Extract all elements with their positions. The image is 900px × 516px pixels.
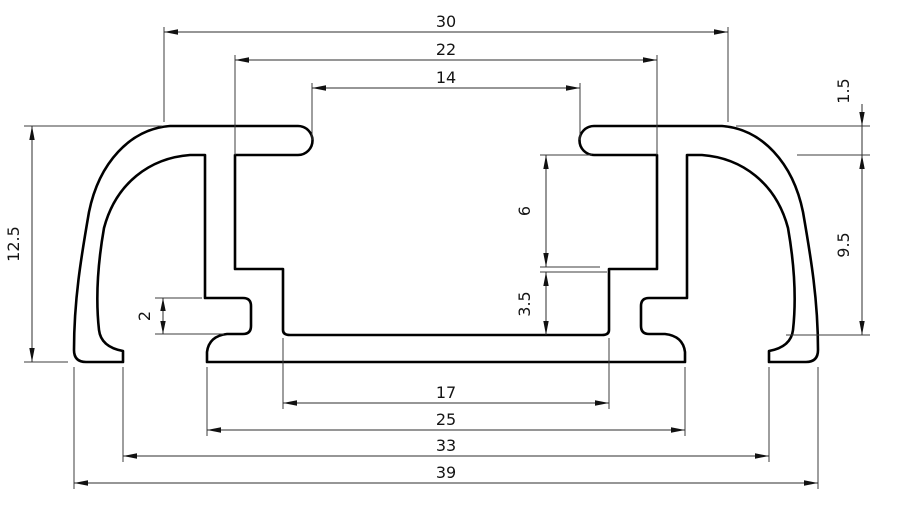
dim-top-flange-width: 30 — [164, 12, 728, 122]
arrow-down-icon — [160, 321, 165, 334]
dim-label: 12.5 — [4, 226, 23, 262]
arrow-left-icon — [283, 400, 297, 405]
arrow-left-icon — [235, 57, 249, 62]
arrow-right-icon — [595, 400, 609, 405]
dim-label: 1.5 — [834, 78, 853, 103]
arrow-right-icon — [804, 480, 818, 485]
dim-label: 25 — [436, 410, 456, 429]
arrow-up-icon — [543, 155, 548, 169]
arrow-down-icon — [859, 112, 864, 126]
arrow-left-icon — [312, 85, 326, 90]
arrow-left-icon — [207, 427, 221, 432]
arrow-right-icon — [714, 29, 728, 34]
profile-outline — [74, 126, 818, 362]
dim-side-groove-height: 2 — [135, 298, 224, 334]
arrow-left-icon — [164, 29, 178, 34]
dim-label: 14 — [436, 68, 456, 87]
dim-label: 6 — [515, 206, 534, 216]
dim-label: 39 — [436, 463, 456, 482]
arrow-up-icon — [160, 298, 165, 311]
dim-label: 30 — [436, 12, 456, 31]
arrow-down-icon — [29, 348, 34, 362]
arrow-up-icon — [859, 155, 864, 169]
drawing-canvas: 30 22 14 1.5 9.5 12.5 — [0, 0, 900, 516]
arrow-down-icon — [859, 321, 864, 335]
arrow-right-icon — [671, 427, 685, 432]
dim-label: 2 — [135, 311, 154, 321]
dim-channel-upper-depth: 6 — [515, 155, 600, 267]
technical-drawing: 30 22 14 1.5 9.5 12.5 — [0, 0, 900, 516]
dim-label: 3.5 — [515, 291, 534, 316]
arrow-left-icon — [74, 480, 88, 485]
arrow-up-icon — [543, 272, 548, 286]
arrow-right-icon — [643, 57, 657, 62]
arrow-up-icon — [29, 126, 34, 140]
dim-label: 22 — [436, 40, 456, 59]
arrow-right-icon — [755, 453, 769, 458]
arrow-down-icon — [543, 321, 548, 335]
dim-label: 9.5 — [834, 232, 853, 257]
dim-label: 17 — [436, 383, 456, 402]
arrow-right-icon — [566, 85, 580, 90]
dim-channel-lower-depth: 3.5 — [515, 272, 607, 335]
arrow-left-icon — [123, 453, 137, 458]
arrow-down-icon — [543, 253, 548, 267]
dim-slot-opening-width: 14 — [312, 68, 580, 140]
dim-label: 33 — [436, 436, 456, 455]
